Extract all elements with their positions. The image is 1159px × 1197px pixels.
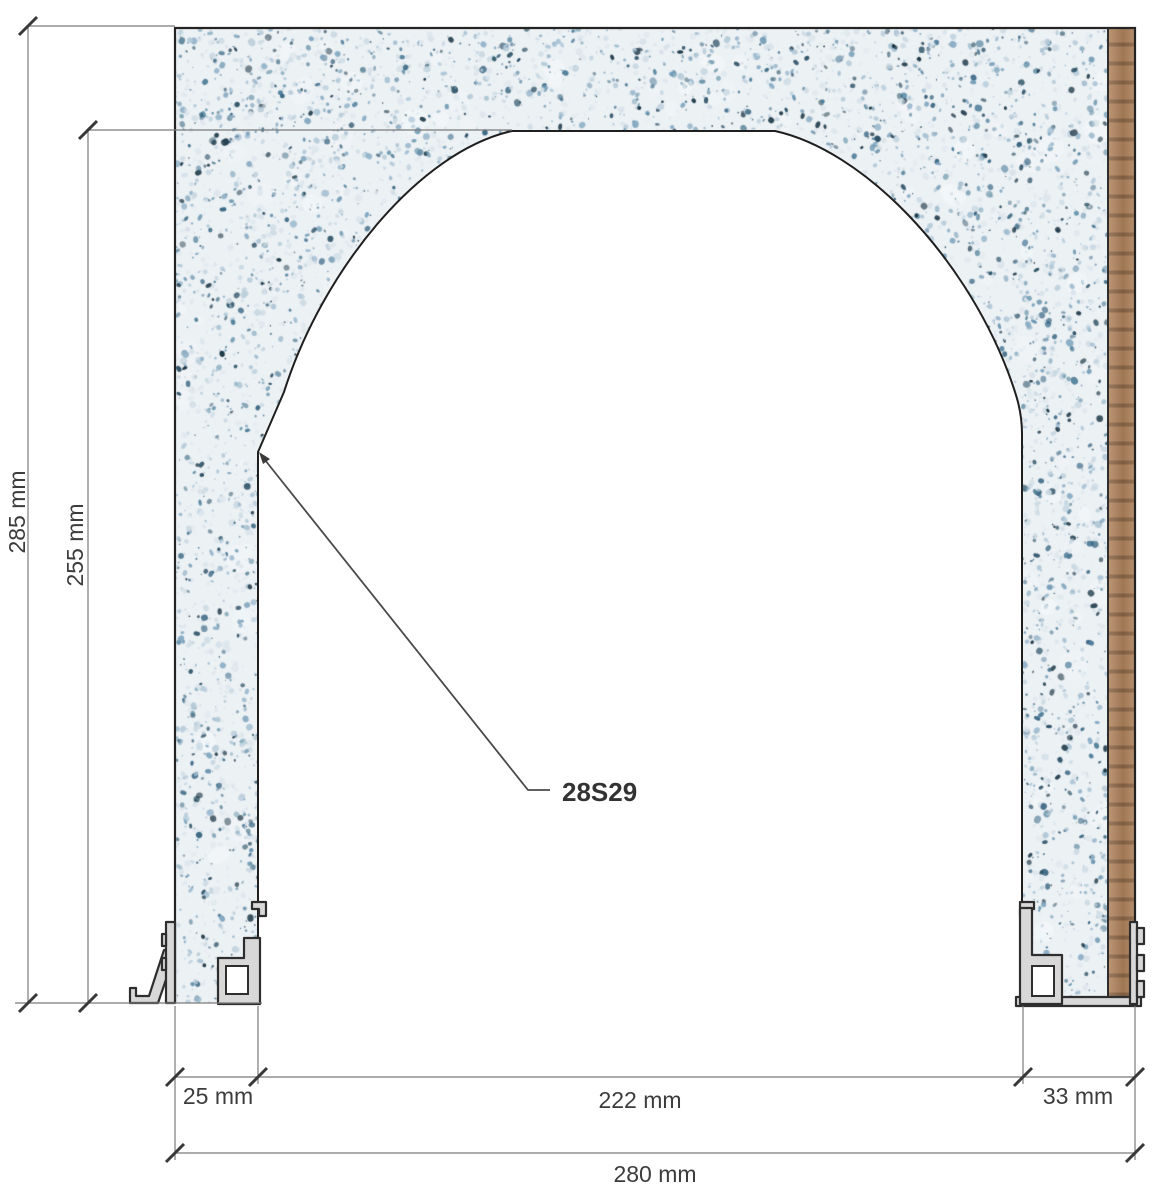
drawing-overlay: 28S29 285 mm 255 mm 25 mm 222 mm 33 mm 2…: [0, 0, 1159, 1197]
technical-drawing-canvas: 28S29 285 mm 255 mm 25 mm 222 mm 33 mm 2…: [0, 0, 1159, 1197]
wood-clip-tab: [1137, 955, 1144, 971]
dim-label-overall-height: 285 mm: [4, 470, 30, 553]
arch-opening-fill: [258, 131, 1022, 1003]
floor-profile-left: [130, 902, 266, 1004]
left-channel-void: [226, 966, 248, 994]
wood-clip-tab: [1137, 928, 1144, 944]
dim-label-overall-width: 280 mm: [613, 1161, 696, 1187]
part-label: 28S29: [562, 777, 637, 807]
dim-label-right-jamb: 33 mm: [1043, 1083, 1113, 1109]
left-clip-strip-profile: [166, 922, 175, 1003]
left-clip-bump: [162, 958, 166, 970]
dim-label-opening-width: 222 mm: [598, 1087, 681, 1113]
floor-profile-right: [1016, 902, 1144, 1006]
right-channel-void: [1032, 966, 1054, 996]
wood-clip-tab: [1137, 981, 1144, 997]
dim-label-opening-height: 255 mm: [62, 503, 88, 586]
left-clip-bump: [162, 934, 166, 946]
left-hook-profile: [252, 902, 266, 916]
dim-label-left-jamb: 25 mm: [183, 1083, 253, 1109]
